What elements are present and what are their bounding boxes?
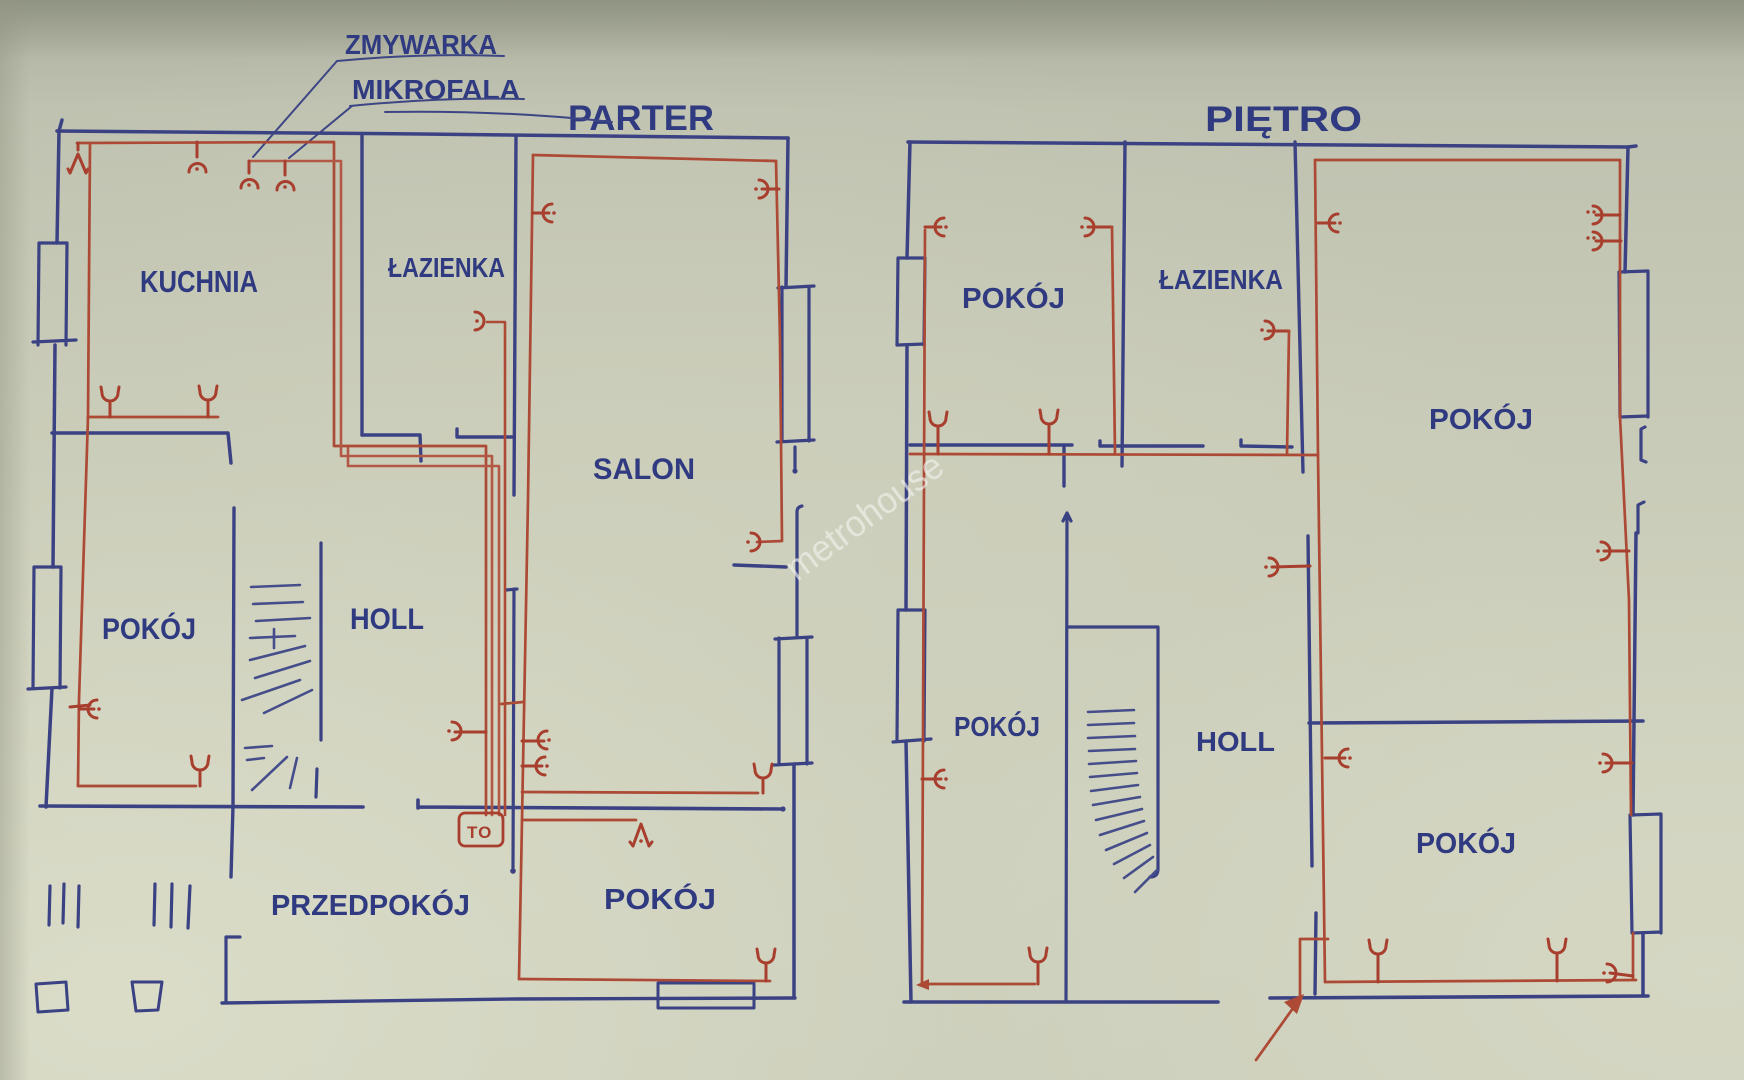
svg-text:POKÓJ: POKÓJ bbox=[102, 612, 196, 646]
svg-text:PIĘTRO: PIĘTRO bbox=[1205, 100, 1362, 139]
svg-text:KUCHNIA: KUCHNIA bbox=[140, 264, 258, 299]
svg-text:HOLL: HOLL bbox=[1196, 726, 1275, 757]
svg-text:POKÓJ: POKÓJ bbox=[1416, 826, 1516, 860]
svg-text:PARTER: PARTER bbox=[568, 99, 714, 138]
svg-text:ŁAZIENKA: ŁAZIENKA bbox=[1159, 264, 1283, 295]
svg-text:POKÓJ: POKÓJ bbox=[962, 281, 1065, 315]
svg-text:POKÓJ: POKÓJ bbox=[1429, 402, 1533, 436]
svg-text:TO: TO bbox=[467, 823, 492, 842]
svg-text:ŁAZIENKA: ŁAZIENKA bbox=[388, 252, 505, 283]
svg-text:POKÓJ: POKÓJ bbox=[604, 882, 716, 916]
svg-text:HOLL: HOLL bbox=[350, 603, 424, 636]
svg-text:POKÓJ: POKÓJ bbox=[954, 711, 1040, 742]
svg-text:SALON: SALON bbox=[593, 453, 695, 486]
svg-text:PRZEDPOKÓJ: PRZEDPOKÓJ bbox=[271, 888, 470, 922]
